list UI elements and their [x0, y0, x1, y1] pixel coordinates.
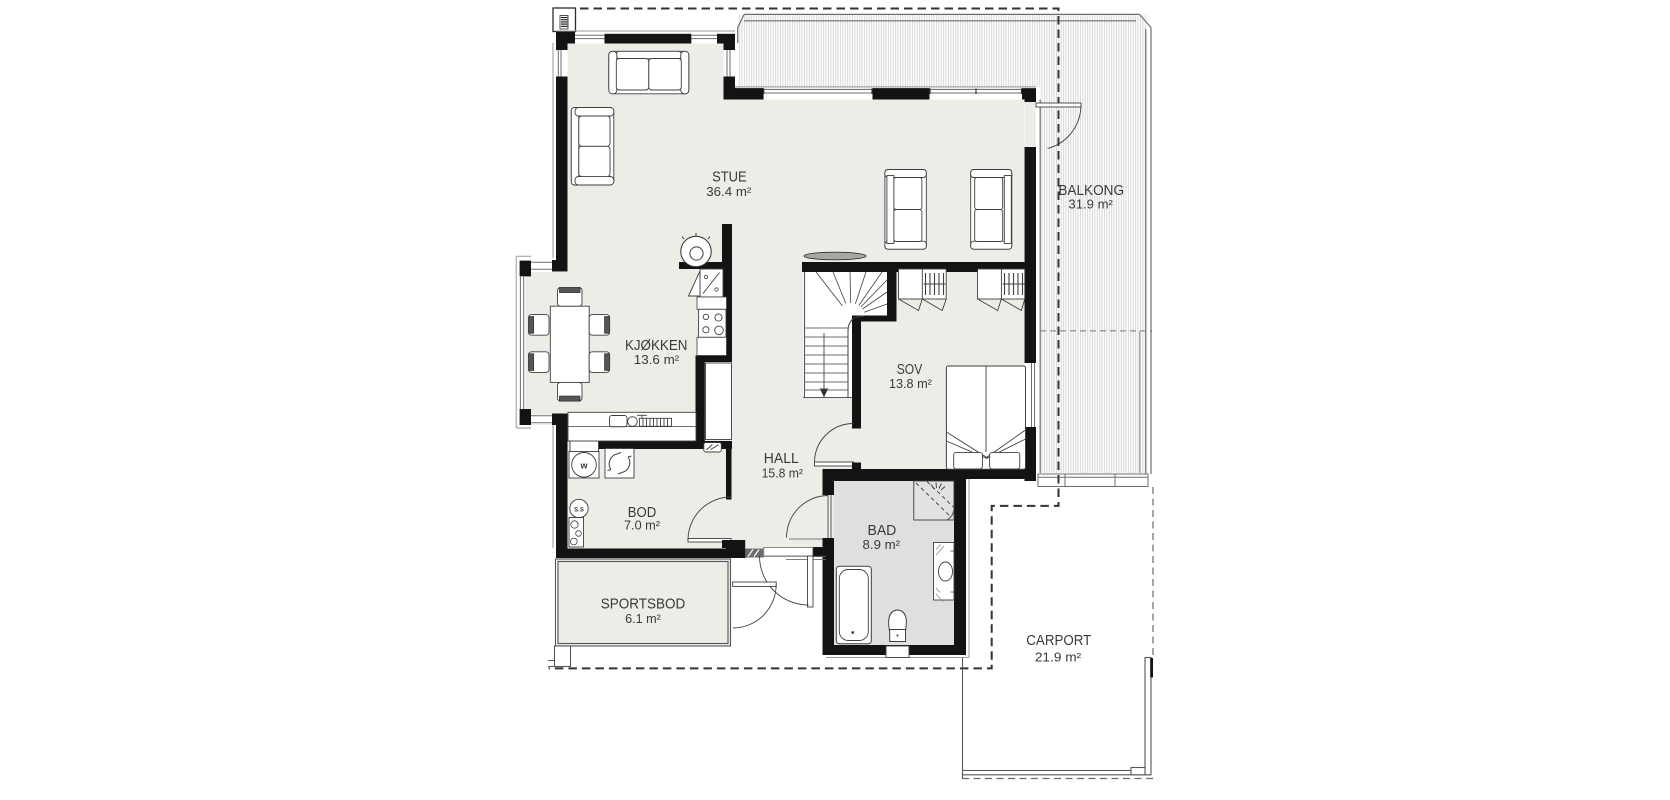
svg-text:31.9 m²: 31.9 m²	[1068, 198, 1113, 212]
svg-text:CARPORT: CARPORT	[1026, 632, 1091, 649]
svg-text:13.8 m²: 13.8 m²	[889, 377, 932, 391]
svg-text:13.6 m²: 13.6 m²	[634, 353, 679, 367]
svg-text:21.9 m²: 21.9 m²	[1035, 650, 1081, 664]
svg-text:7.0 m²: 7.0 m²	[624, 518, 660, 532]
svg-text:6.1 m²: 6.1 m²	[625, 612, 661, 626]
svg-text:S.S: S.S	[574, 508, 584, 514]
svg-text:15.8 m²: 15.8 m²	[762, 466, 803, 480]
svg-text:SPORTSBOD: SPORTSBOD	[601, 595, 686, 612]
svg-text:STUE: STUE	[712, 168, 747, 185]
svg-text:8.9 m²: 8.9 m²	[863, 538, 901, 552]
svg-text:SOV: SOV	[897, 361, 923, 378]
svg-text:KJØKKEN: KJØKKEN	[625, 337, 688, 354]
svg-text:36.4 m²: 36.4 m²	[706, 185, 751, 199]
svg-text:w: w	[579, 461, 588, 471]
svg-text:BAD: BAD	[868, 522, 897, 539]
svg-text:HALL: HALL	[764, 450, 799, 467]
